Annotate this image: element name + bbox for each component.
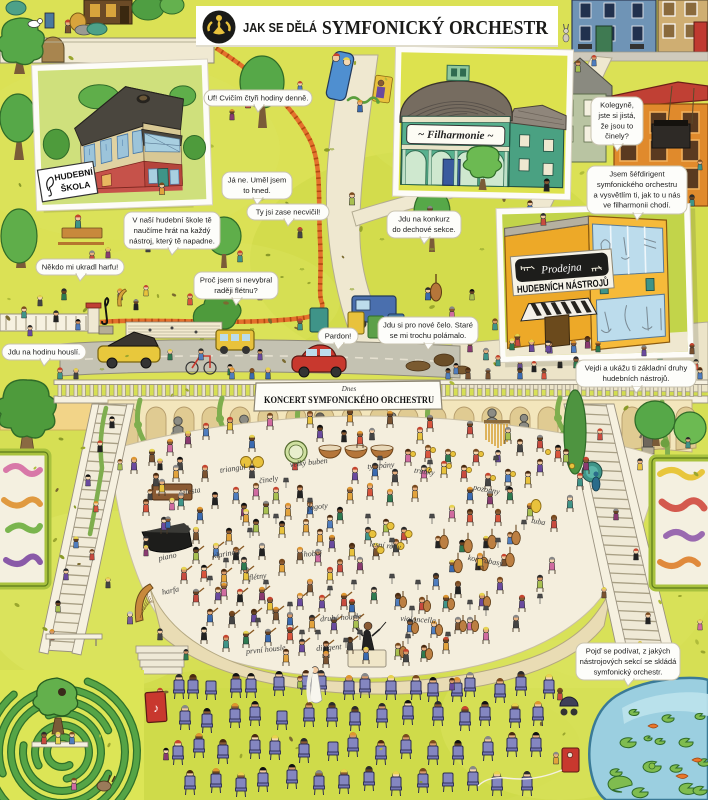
svg-text:Jdu na hodinu houslí.: Jdu na hodinu houslí.	[8, 348, 80, 357]
svg-text:Já ne. Uměl jsem: Já ne. Uměl jsem	[228, 176, 287, 185]
svg-text:to hned.: to hned.	[243, 186, 270, 195]
svg-text:Kolegyně,: Kolegyně,	[600, 101, 634, 110]
svg-text:Jdu si pro nové čelo. Staré: Jdu si pro nové čelo. Staré	[383, 321, 473, 330]
svg-text:činely?: činely?	[605, 132, 629, 141]
svg-text:V naší hudební škole tě: V naší hudební škole tě	[132, 216, 211, 225]
svg-text:dirigent: dirigent	[316, 642, 343, 653]
svg-text:symfonického orchestru: symfonického orchestru	[597, 180, 677, 189]
svg-text:Proč jsem si nevybral: Proč jsem si nevybral	[200, 276, 272, 285]
svg-text:hoboj: hoboj	[303, 548, 323, 558]
svg-text:KONCERT SYMFONICKÉHO ORCHESTRU: KONCERT SYMFONICKÉHO ORCHESTRU	[264, 394, 434, 406]
svg-text:do dechové sekce.: do dechové sekce.	[392, 225, 455, 234]
svg-text:Jsem šéfdirigent: Jsem šéfdirigent	[609, 170, 665, 179]
svg-text:raději flétnu?: raději flétnu?	[214, 286, 257, 295]
svg-text:nástroj, který tě napadne.: nástroj, který tě napadne.	[129, 236, 215, 245]
svg-text:Pardon!: Pardon!	[325, 332, 352, 341]
svg-text:Vejdi a ukážu ti základní druh: Vejdi a ukážu ti základní druhy	[585, 364, 688, 373]
svg-text:nástrojových sekcí se skládá: nástrojových sekcí se skládá	[580, 657, 677, 666]
svg-text:ve filharmonii chodí.: ve filharmonii chodí.	[603, 201, 671, 210]
svg-text:Uf! Cvičím čtyři hodiny denně.: Uf! Cvičím čtyři hodiny denně.	[208, 94, 309, 103]
svg-text:jste si jistá,: jste si jistá,	[597, 111, 635, 120]
svg-text:naučíme hrát na každý: naučíme hrát na každý	[134, 226, 211, 235]
svg-text:se mi trochu polámalo.: se mi trochu polámalo.	[390, 331, 466, 340]
svg-text:♪: ♪	[153, 701, 160, 715]
svg-text:symfonický orchestr.: symfonický orchestr.	[594, 667, 663, 676]
svg-text:hudebních nástrojů.: hudebních nástrojů.	[603, 374, 670, 383]
svg-text:JAK SE DĚLÁ: JAK SE DĚLÁ	[243, 20, 317, 35]
svg-text:Dnes: Dnes	[341, 385, 357, 393]
svg-text:tympány: tympány	[367, 460, 395, 471]
svg-text:Pojď se podívat, z jakých: Pojď se podívat, z jakých	[586, 647, 670, 656]
svg-text:SYMFONICKÝ ORCHESTR: SYMFONICKÝ ORCHESTR	[322, 16, 548, 39]
svg-text:Někdo mi ukradl harfu!: Někdo mi ukradl harfu!	[42, 263, 118, 272]
svg-text:Ty jsi zase necvičil!: Ty jsi zase necvičil!	[256, 208, 321, 217]
svg-text:a vysvětlím ti, jak to u nás: a vysvětlím ti, jak to u nás	[594, 190, 681, 199]
svg-text:~ Filharmonie ~: ~ Filharmonie ~	[418, 129, 494, 143]
svg-text:Jdu na konkurz: Jdu na konkurz	[398, 215, 450, 224]
svg-text:že jsou to: že jsou to	[601, 121, 634, 130]
